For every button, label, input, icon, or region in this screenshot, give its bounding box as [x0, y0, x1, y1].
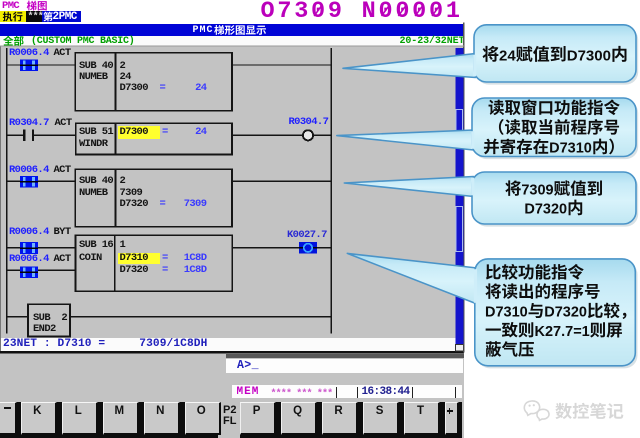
- svg-text:D7300: D7300: [567, 47, 611, 64]
- svg-text:K27.7=1: K27.7=1: [535, 324, 590, 340]
- svg-text:24: 24: [499, 47, 516, 64]
- svg-text:D7320: D7320: [544, 305, 587, 321]
- svg-text:D7320: D7320: [524, 202, 567, 218]
- svg-text:D7310: D7310: [485, 305, 528, 321]
- svg-text:D7310: D7310: [549, 141, 592, 157]
- svg-text:7309: 7309: [521, 182, 553, 198]
